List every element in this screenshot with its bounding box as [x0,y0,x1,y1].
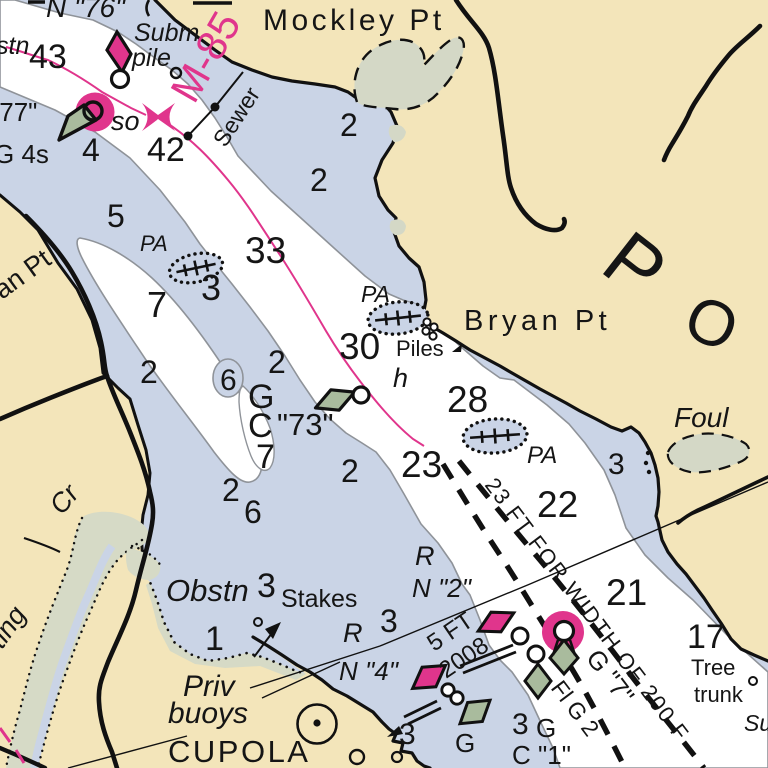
svg-text:23: 23 [401,444,442,485]
svg-text:PA: PA [140,231,168,256]
svg-text:2: 2 [341,453,359,489]
svg-text:3: 3 [512,708,529,741]
svg-text:Mockley Pt: Mockley Pt [263,4,445,37]
svg-text:PA: PA [361,281,390,307]
svg-text:G: G [536,713,556,743]
svg-text:4: 4 [82,132,100,168]
svg-text:17: 17 [687,618,725,656]
svg-text:stn: stn [0,32,29,60]
svg-text:R: R [343,618,363,648]
svg-text:Tree: Tree [691,655,735,680]
svg-text:3: 3 [399,718,416,751]
svg-text:3: 3 [380,603,398,639]
svg-text:2: 2 [268,344,286,380]
svg-text:N "2": N "2" [412,573,473,603]
svg-text:CUPOLA: CUPOLA [168,734,310,768]
svg-text:2: 2 [222,472,240,508]
svg-text:Obstn: Obstn [166,573,249,608]
svg-text:trunk: trunk [694,682,744,707]
svg-text:pile: pile [131,44,171,72]
svg-text:3: 3 [608,448,625,481]
svg-text:"73": "73" [277,407,334,442]
svg-text:7: 7 [147,284,167,325]
svg-text:22: 22 [537,484,578,525]
svg-text:1: 1 [205,620,224,658]
svg-text:G: G [455,728,475,758]
svg-text:h: h [393,363,408,393]
svg-text:42: 42 [147,131,185,169]
svg-text:G 4s: G 4s [0,139,49,169]
svg-text:PA: PA [527,442,557,469]
svg-text:Su: Su [744,710,768,736]
svg-text:N "4": N "4" [339,656,400,686]
svg-text:Stakes: Stakes [281,585,357,613]
svg-text:2: 2 [140,354,158,390]
svg-text:3: 3 [257,567,276,605]
svg-text:21: 21 [606,572,647,613]
svg-text:so: so [111,106,140,136]
svg-text:Piles: Piles [396,336,444,361]
svg-text:5: 5 [107,198,125,234]
svg-text:buoys: buoys [168,697,248,730]
svg-text:3: 3 [201,267,221,308]
svg-text:30: 30 [339,326,380,367]
svg-text:"77": "77" [0,97,37,127]
svg-text:43: 43 [29,38,67,76]
svg-text:6: 6 [244,494,262,530]
svg-text:6: 6 [220,364,237,397]
svg-text:28: 28 [447,379,488,420]
svg-text:7: 7 [256,438,275,476]
svg-text:R: R [415,541,435,571]
svg-text:2: 2 [340,107,358,143]
svg-text:C "1": C "1" [512,740,571,768]
svg-text:Foul: Foul [674,402,729,433]
svg-text:33: 33 [245,230,286,271]
svg-text:2: 2 [310,162,328,198]
svg-text:N "76": N "76" [46,0,126,23]
svg-text:Bryan Pt: Bryan Pt [464,305,611,337]
